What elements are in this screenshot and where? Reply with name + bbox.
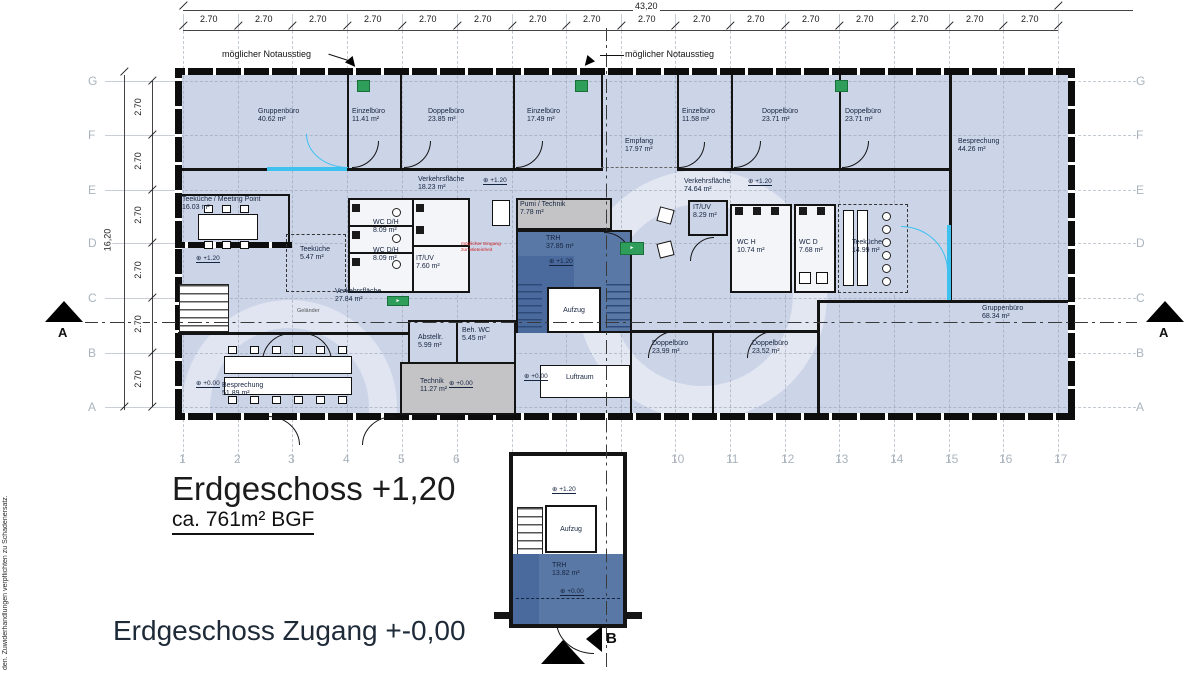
room-label-doppelb-ro-6: Doppelbüro23.71 m² xyxy=(762,108,798,125)
room-area: 44.26 m² xyxy=(958,146,999,154)
room-name: Doppelbüro xyxy=(762,108,798,116)
grid-col-label-4: 4 xyxy=(343,452,350,466)
dim-v-segment-1: 2.70 xyxy=(133,98,143,116)
section-line-a xyxy=(85,322,1137,323)
room-area: 23.85 m² xyxy=(428,116,464,124)
stair-tower-part xyxy=(494,612,509,619)
walls-layer-part xyxy=(799,207,807,215)
grid-row-label-right-D: D xyxy=(1136,236,1145,250)
section-marker-a-left: A xyxy=(58,325,67,340)
room-label-gruppenb-ro-0: Gruppenbüro40.62 m² xyxy=(258,108,299,125)
furniture-layer-part xyxy=(228,346,237,354)
room-area: 74.64 m² xyxy=(684,186,730,194)
walls-layer-part xyxy=(352,231,360,239)
section-marker-b: B xyxy=(606,630,617,647)
walls-layer-part xyxy=(286,234,346,292)
grid-col-label-13: 13 xyxy=(835,452,848,466)
walls-layer-part xyxy=(178,332,410,335)
room-label-it-uv-18: IT/UV8.29 m² xyxy=(693,204,717,221)
room-area: 17.97 m² xyxy=(625,146,653,154)
room-name: Pumi / Technik xyxy=(520,201,565,209)
room-label-einzelb-ro-5: Einzelbüro11.58 m² xyxy=(682,108,715,125)
floorplan-canvas: 43,20 16,20 möglicher Notausstieg möglic… xyxy=(0,0,1200,675)
walls-layer-part xyxy=(400,75,402,170)
walls-layer-part xyxy=(677,168,949,171)
walls-layer-part xyxy=(816,272,828,284)
room-name: Einzelbüro xyxy=(527,108,560,116)
grid-col-label-3: 3 xyxy=(288,452,295,466)
room-label-teek-che-meeting-point-11: Teeküche / Meeting Point16.03 m² xyxy=(182,196,261,213)
room-label-abstellr-24: Abstellr.5.99 m² xyxy=(418,334,443,351)
dim-v-segment-5: 2.70 xyxy=(133,315,143,333)
grid-stub xyxy=(105,407,175,408)
room-area: 27.84 m² xyxy=(335,296,381,304)
walls-layer-part xyxy=(175,68,1075,75)
walls-layer-part xyxy=(400,362,516,415)
room-name: Beh. WC xyxy=(462,327,490,335)
room-name: Teeküche xyxy=(852,239,882,247)
walls-layer-part xyxy=(882,264,891,273)
room-area: 8.09 m² xyxy=(373,227,399,235)
walls-layer-part xyxy=(882,212,891,221)
walls-layer-part xyxy=(882,225,891,234)
gridline-col-10 xyxy=(675,36,676,462)
room-name: WC H xyxy=(737,239,765,247)
dim-v-segment-6: 2.70 xyxy=(133,370,143,388)
dim-h-segment-7: 2.70 xyxy=(527,14,549,24)
room-area: 23.99 m² xyxy=(652,348,688,356)
walls-layer-part xyxy=(601,75,603,170)
room-label-empfang-4: Empfang17.97 m² xyxy=(625,138,653,155)
gridline-col-17 xyxy=(1058,36,1059,462)
room-label-doppelb-ro-2: Doppelbüro23.85 m² xyxy=(428,108,464,125)
grid-col-label-14: 14 xyxy=(890,452,903,466)
elevator-shaft: Aufzug xyxy=(545,505,597,553)
floor-title: Erdgeschoss +1,20 xyxy=(172,470,455,508)
walls-layer-part xyxy=(175,242,292,248)
level-marker-5: ⊕ +0.00 xyxy=(196,379,220,388)
grid-row-label-right-C: C xyxy=(1136,291,1145,305)
stair-tower-part xyxy=(513,554,539,624)
grid-row-label-right-B: B xyxy=(1136,346,1144,360)
walls-layer-part xyxy=(1068,68,1075,420)
section-marker-a-right: A xyxy=(1159,325,1168,340)
room-label-verkehrsfl-che-22: Verkehrsfläche27.84 m² xyxy=(335,288,381,305)
elevator-shaft: Aufzug xyxy=(547,287,601,333)
room-label-beh-wc-25: Beh. WC5.45 m² xyxy=(462,327,490,344)
level-marker-7: ⊕ +0.00 xyxy=(524,372,548,381)
gridline-row-G xyxy=(140,81,1136,82)
dim-v-segment-3: 2.70 xyxy=(133,206,143,224)
walls-layer-part xyxy=(416,226,424,234)
room-area: 17.49 m² xyxy=(527,116,560,124)
grid-stub xyxy=(105,81,175,82)
walls-layer-part xyxy=(817,300,1068,303)
dim-line-total-height xyxy=(124,75,125,410)
room-label-trh-31: TRH13.82 m² xyxy=(552,562,580,579)
furniture-layer-part xyxy=(250,346,259,354)
dim-h-segment-10: 2.70 xyxy=(691,14,713,24)
dim-h-segment-5: 2.70 xyxy=(417,14,439,24)
emergency-exit-label: möglicher Notausstieg xyxy=(625,49,714,59)
room-area: 7.78 m² xyxy=(520,209,565,217)
room-name: IT/UV xyxy=(693,204,717,212)
room-name: Doppelbüro xyxy=(752,340,788,348)
dim-h-segment-14: 2.70 xyxy=(909,14,931,24)
room-name: Einzelbüro xyxy=(352,108,385,116)
dim-h-segment-11: 2.70 xyxy=(745,14,767,24)
grid-row-label-right-A: A xyxy=(1136,400,1144,414)
leader-arrow-icon xyxy=(581,55,595,69)
dim-h-segment-2: 2.70 xyxy=(253,14,275,24)
grid-col-label-10: 10 xyxy=(671,452,684,466)
level-marker-1: ⊕ +1.20 xyxy=(483,176,507,185)
room-name: Besprechung xyxy=(958,138,999,146)
floorplan-canvas-part xyxy=(179,1,188,10)
walls-layer-part xyxy=(799,272,811,284)
walls-layer-part xyxy=(630,330,632,413)
room-area: 18.23 m² xyxy=(418,184,464,192)
grid-stub xyxy=(105,243,175,244)
room-area: 23.71 m² xyxy=(762,116,798,124)
grid-row-label-left-F: F xyxy=(88,128,95,142)
walls-layer-part xyxy=(456,320,458,364)
grid-row-label-left-D: D xyxy=(88,236,97,250)
furniture-layer-part xyxy=(204,241,213,249)
floor-area-subtitle: ca. 761m² BGF xyxy=(172,508,314,535)
room-name: Luftraum xyxy=(566,374,594,382)
exit-sign-icon xyxy=(575,80,588,92)
furniture-layer-part xyxy=(198,214,258,240)
walls-layer-part xyxy=(771,207,779,215)
walls-layer-part xyxy=(731,75,733,170)
walls-layer-part xyxy=(606,284,630,331)
room-area: 7.68 m² xyxy=(799,247,823,255)
room-area: 11.27 m² xyxy=(420,386,447,394)
room-area: 5.99 m² xyxy=(418,342,443,350)
grid-col-label-16: 16 xyxy=(999,452,1012,466)
room-label-wc-d-h-14: WC D/H8.09 m² xyxy=(373,247,399,264)
walls-layer-part xyxy=(513,75,515,170)
grid-stub xyxy=(105,190,175,191)
dim-h-segment-8: 2.70 xyxy=(581,14,603,24)
gridline-row-A xyxy=(140,407,1136,408)
room-area: 37.85 m² xyxy=(546,243,574,251)
dim-h-segment-13: 2.70 xyxy=(854,14,876,24)
room-name: Technik xyxy=(420,378,447,386)
furniture-layer-part xyxy=(272,346,281,354)
room-label-luftraum-30: Luftraum xyxy=(566,374,594,382)
emergency-exit-label: möglicher Notausstieg xyxy=(222,49,311,59)
furniture-layer-part xyxy=(294,396,303,404)
level-marker-8: ⊕ +1.20 xyxy=(552,485,576,494)
room-name: Empfang xyxy=(625,138,653,146)
room-label-wc-d-h-13: WC D/H8.09 m² xyxy=(373,219,399,236)
level-marker-2: ⊕ +1.20 xyxy=(748,177,772,186)
room-label-teek-che-21: Teeküche14.99 m² xyxy=(852,239,882,256)
doors-layer-part xyxy=(362,416,394,445)
walls-layer-part xyxy=(882,277,891,286)
walls-layer-part xyxy=(175,413,1075,420)
floorplan-canvas-part xyxy=(600,55,624,56)
exit-sign-icon: ► xyxy=(387,296,409,306)
walls-layer-part xyxy=(392,208,401,217)
room-area: 13.82 m² xyxy=(552,570,580,578)
gridline-col-1 xyxy=(183,36,184,462)
elevator-label: Aufzug xyxy=(560,526,582,533)
room-name: Doppelbüro xyxy=(652,340,688,348)
grid-stub xyxy=(105,298,175,299)
walls-layer-part xyxy=(416,204,424,212)
grid-col-label-15: 15 xyxy=(945,452,958,466)
grid-row-label-right-G: G xyxy=(1136,74,1145,88)
grid-col-label-6: 6 xyxy=(453,452,460,466)
room-label-besprechung-28: Besprechung51.89 m² xyxy=(222,382,263,399)
furniture-layer-part xyxy=(316,396,325,404)
walls-layer-part xyxy=(518,284,542,331)
section-line-b xyxy=(606,28,607,670)
room-label-teek-che-12: Teeküche5.47 m² xyxy=(300,246,330,263)
walls-layer-part xyxy=(347,168,603,171)
grid-col-label-1: 1 xyxy=(179,452,186,466)
stair-tower-part xyxy=(516,598,620,599)
room-label-einzelb-ro-3: Einzelbüro17.49 m² xyxy=(527,108,560,125)
room-label-besprechung-8: Besprechung44.26 m² xyxy=(958,138,999,155)
walls-layer-part xyxy=(817,300,820,413)
dim-h-segment-4: 2.70 xyxy=(362,14,384,24)
level-marker-9: ⊕ +0.00 xyxy=(560,587,584,596)
dim-h-segment-6: 2.70 xyxy=(472,14,494,24)
level-marker-4: ⊕ +1.20 xyxy=(549,257,573,266)
room-name: Gruppenbüro xyxy=(982,305,1023,313)
room-name: TRH xyxy=(552,562,580,570)
walls-layer-part xyxy=(179,284,229,332)
dim-h-segment-16: 2.70 xyxy=(1019,14,1041,24)
room-area: 51.89 m² xyxy=(222,390,263,398)
room-area: 23.52 m² xyxy=(752,348,788,356)
grid-stub xyxy=(105,353,175,354)
room-label-verkehrsfl-che-9: Verkehrsfläche18.23 m² xyxy=(418,176,464,193)
walls-layer-part xyxy=(182,168,267,171)
room-name: Teeküche xyxy=(300,246,330,254)
grid-row-label-right-F: F xyxy=(1136,128,1143,142)
room-label-wc-d-20: WC D7.68 m² xyxy=(799,239,823,256)
room-label-pumi-technik-16: Pumi / Technik7.78 m² xyxy=(520,201,565,218)
level-marker-6: ⊕ +0.00 xyxy=(449,379,473,388)
room-name: IT/UV xyxy=(416,255,440,263)
walls-layer-part xyxy=(817,207,825,215)
grid-row-label-left-A: A xyxy=(88,400,96,414)
gridline-row-F xyxy=(140,135,1136,136)
walls-layer-part xyxy=(352,258,360,266)
room-name: TRH xyxy=(546,235,574,243)
legal-side-note: den. Zuwiderhandlungen verpflichten zu S… xyxy=(2,368,15,670)
grid-stub xyxy=(105,135,175,136)
grid-row-label-left-C: C xyxy=(88,291,97,305)
room-label-technik-29: Technik11.27 m² xyxy=(420,378,447,395)
room-area: 8.09 m² xyxy=(373,255,399,263)
room-name: Teeküche / Meeting Point xyxy=(182,196,261,204)
grid-col-label-5: 5 xyxy=(398,452,405,466)
dim-line-segments xyxy=(183,30,1058,31)
walls-layer-part xyxy=(735,207,743,215)
walls-layer-part xyxy=(882,238,891,247)
room-name: WC D/H xyxy=(373,219,399,227)
walls-layer-part xyxy=(712,330,714,413)
room-area: 5.47 m² xyxy=(300,254,330,262)
dim-v-segment-4: 2.70 xyxy=(133,261,143,279)
room-area: 5.45 m² xyxy=(462,335,490,343)
room-area: 10.74 m² xyxy=(737,247,765,255)
furniture-layer-part xyxy=(224,356,352,374)
grid-col-label-12: 12 xyxy=(781,452,794,466)
exit-sign-icon xyxy=(357,80,370,92)
grid-col-label-2: 2 xyxy=(234,452,241,466)
exit-sign-icon xyxy=(835,80,848,92)
room-name: Verkehrsfläche xyxy=(335,288,381,296)
section-marker-b-icon xyxy=(541,640,585,664)
gridline-row-E xyxy=(140,190,1136,191)
room-label-einzelb-ro-1: Einzelbüro11.41 m² xyxy=(352,108,385,125)
room-name: Gruppenbüro xyxy=(258,108,299,116)
furniture-layer-part xyxy=(272,396,281,404)
room-name: WC D/H xyxy=(373,247,399,255)
room-area: 14.99 m² xyxy=(852,247,882,255)
room-label-doppelb-ro-7: Doppelbüro23.71 m² xyxy=(845,108,881,125)
room-label-wc-h-19: WC H10.74 m² xyxy=(737,239,765,256)
walls-layer-part xyxy=(267,167,347,171)
railing-label: Geländer xyxy=(297,308,320,314)
room-name: Verkehrsfläche xyxy=(418,176,464,184)
dim-h-segment-1: 2.70 xyxy=(198,14,220,24)
grid-row-label-right-E: E xyxy=(1136,183,1144,197)
grid-row-label-left-B: B xyxy=(88,346,96,360)
walls-layer-part xyxy=(630,330,817,333)
gridline-col-16 xyxy=(1003,36,1004,462)
walls-layer-part xyxy=(753,207,761,215)
walls-layer-part xyxy=(882,251,891,260)
access-title: Erdgeschoss Zugang +-0,00 xyxy=(113,615,466,647)
room-label-trh-17: TRH37.85 m² xyxy=(546,235,574,252)
furniture-layer-part xyxy=(316,346,325,354)
room-label-doppelb-ro-26: Doppelbüro23.99 m² xyxy=(652,340,688,357)
room-area: 23.71 m² xyxy=(845,116,881,124)
room-name: Verkehrsfläche xyxy=(684,178,730,186)
grid-col-label-11: 11 xyxy=(726,452,738,466)
section-marker-a-right-icon xyxy=(1146,301,1184,322)
room-name: Besprechung xyxy=(222,382,263,390)
room-label-gruppenb-ro-23: Gruppenbüro68.34 m² xyxy=(982,305,1023,322)
room-label-verkehrsfl-che-10: Verkehrsfläche74.64 m² xyxy=(684,178,730,195)
room-area: 11.58 m² xyxy=(682,116,715,124)
level-marker-3: ⊕ +1.20 xyxy=(196,254,220,263)
floorplan-canvas-part xyxy=(1054,1,1063,10)
walls-layer-part xyxy=(601,167,677,169)
total-width-label: 43,20 xyxy=(633,1,660,11)
dim-h-segment-9: 2.70 xyxy=(636,14,658,24)
room-name: Doppelbüro xyxy=(845,108,881,116)
entrance-note: möglicher Eingang zur Mieteinheit xyxy=(461,242,507,254)
room-label-doppelb-ro-27: Doppelbüro23.52 m² xyxy=(752,340,788,357)
room-area: 16.03 m² xyxy=(182,204,261,212)
stair-tower-part xyxy=(627,612,642,619)
furniture-layer-part xyxy=(338,346,347,354)
dim-v-segment-2: 2.70 xyxy=(133,152,143,170)
room-area: 68.34 m² xyxy=(982,313,1023,321)
grid-col-label-17: 17 xyxy=(1054,452,1067,466)
walls-layer-part xyxy=(352,204,360,212)
section-marker-a-left-icon xyxy=(45,301,83,322)
dim-h-segment-15: 2.70 xyxy=(964,14,986,24)
furniture-layer-part xyxy=(240,241,249,249)
dim-h-segment-3: 2.70 xyxy=(307,14,329,24)
walls-layer-part xyxy=(492,200,510,226)
grid-row-label-left-E: E xyxy=(88,183,96,197)
furniture-layer-part xyxy=(338,396,347,404)
room-area: 40.62 m² xyxy=(258,116,299,124)
section-marker-b-arrow-icon xyxy=(586,626,602,652)
furniture-layer-part xyxy=(222,241,231,249)
room-label-it-uv-15: IT/UV7.60 m² xyxy=(416,255,440,272)
dim-h-segment-12: 2.70 xyxy=(800,14,822,24)
room-area: 7.60 m² xyxy=(416,263,440,271)
exit-sign-icon: ► xyxy=(620,242,644,255)
room-name: Doppelbüro xyxy=(428,108,464,116)
room-area: 11.41 m² xyxy=(352,116,385,124)
gridline-row-C xyxy=(140,298,1136,299)
total-height-label: 16,20 xyxy=(102,229,112,252)
doors-layer-part xyxy=(268,416,300,445)
room-name: WC D xyxy=(799,239,823,247)
grid-row-label-left-G: G xyxy=(88,74,97,88)
room-area: 8.29 m² xyxy=(693,212,717,220)
room-name: Einzelbüro xyxy=(682,108,715,116)
elevator-label: Aufzug xyxy=(563,307,585,314)
room-name: Abstellr. xyxy=(418,334,443,342)
furniture-layer-part xyxy=(294,346,303,354)
